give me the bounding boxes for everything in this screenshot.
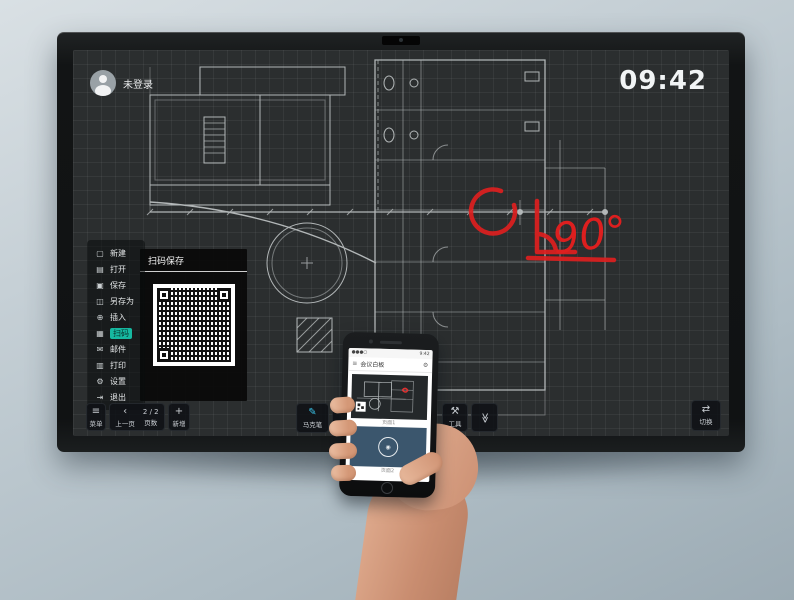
phone-mini-blueprint — [351, 374, 428, 420]
phone-front-camera — [369, 339, 373, 343]
tools-icon: ⚒ — [451, 407, 460, 417]
add-page-button[interactable]: + 新增 — [168, 403, 190, 431]
annotation-angle-text: 90° — [550, 206, 630, 264]
qr-scan-icon: ▦ — [95, 329, 105, 338]
hand-finger — [329, 396, 355, 414]
menu-item-new[interactable]: ▢ 新建 — [87, 245, 145, 261]
scene: 90° 未登录 09:42 ▢ 新建 ▤ 打开 ▣ 保存 — [0, 0, 794, 600]
menu-item-save-as[interactable]: ◫ 另存为 — [87, 293, 145, 309]
user-avatar-icon — [90, 70, 116, 96]
insert-icon: ⊕ — [95, 313, 105, 322]
hand-finger — [329, 419, 358, 436]
pen-icon: ✎ — [308, 408, 316, 418]
menu-item-mail[interactable]: ✉ 邮件 — [87, 341, 145, 357]
tv-camera-module — [382, 36, 420, 45]
hamburger-icon: ≡ — [92, 407, 100, 417]
phone-menu-icon[interactable]: ≡ — [352, 360, 357, 367]
new-file-icon: ▢ — [95, 249, 105, 258]
menu-item-open[interactable]: ▤ 打开 — [87, 261, 145, 277]
mail-icon: ✉ — [95, 345, 105, 354]
file-menu-panel: ▢ 新建 ▤ 打开 ▣ 保存 ◫ 另存为 ⊕ 插入 ▦ 扫码 — [87, 240, 145, 410]
qr-finder-bottom-left — [157, 348, 171, 362]
phone-app-header: ≡ 会议白板 ⚙ — [348, 357, 432, 373]
page-indicator: 2 / 2 页数 — [143, 408, 159, 427]
chevron-left-icon: ‹ — [123, 407, 127, 417]
save-as-icon: ◫ — [95, 297, 105, 306]
prev-page-button[interactable]: ‹ 上一页 — [115, 407, 135, 428]
double-chevron-down-icon: ≫ — [480, 412, 490, 422]
open-folder-icon: ▤ — [95, 265, 105, 274]
toolbar-page-nav[interactable]: ‹ 上一页 2 / 2 页数 — [109, 403, 165, 431]
menu-item-save[interactable]: ▣ 保存 — [87, 277, 145, 293]
menu-item-print[interactable]: ▥ 打印 — [87, 357, 145, 373]
phone-status-time: 9:42 — [419, 352, 429, 357]
print-icon: ▥ — [95, 361, 105, 370]
phone-gear-icon[interactable]: ⚙ — [423, 362, 429, 369]
phone-page-title: 会议白板 — [360, 359, 420, 370]
login-status-label: 未登录 — [123, 76, 153, 91]
switch-source-button[interactable]: ⇄ 切换 — [691, 400, 721, 431]
menu-item-settings[interactable]: ⚙ 设置 — [87, 373, 145, 389]
settings-gear-icon: ⚙ — [95, 377, 105, 386]
switch-arrows-icon: ⇄ — [702, 405, 710, 415]
qr-finder-top-right — [217, 288, 231, 302]
clock: 09:42 — [619, 66, 707, 96]
menu-item-scan-qr[interactable]: ▦ 扫码 — [87, 325, 145, 341]
phone-home-button[interactable] — [381, 482, 393, 494]
hand-finger — [329, 443, 358, 460]
collapse-toolbar-button[interactable]: ≫ — [471, 403, 498, 432]
user-badge[interactable]: 未登录 — [90, 70, 153, 96]
plus-icon: + — [175, 407, 183, 417]
phone-mini-qr — [356, 402, 366, 412]
qr-code[interactable] — [153, 284, 235, 366]
phone-signal-icon: ●●●○ — [352, 350, 368, 355]
qr-save-panel: 扫码保存 — [140, 249, 247, 401]
menu-item-insert[interactable]: ⊕ 插入 — [87, 309, 145, 325]
phone-earpiece — [380, 341, 402, 345]
qr-finder-top-left — [157, 288, 171, 302]
qr-panel-title: 扫码保存 — [140, 249, 247, 272]
exit-icon: ⇥ — [95, 393, 105, 402]
save-icon: ▣ — [95, 281, 105, 290]
marker-pen-button[interactable]: ✎ 马克笔 — [296, 403, 329, 433]
toolbar-menu-button[interactable]: ≡ 菜单 — [86, 403, 106, 431]
phone-card-emblem-icon: ◉ — [378, 437, 399, 458]
phone-whiteboard-thumbnail[interactable] — [351, 374, 428, 420]
hand-finger — [331, 465, 356, 481]
